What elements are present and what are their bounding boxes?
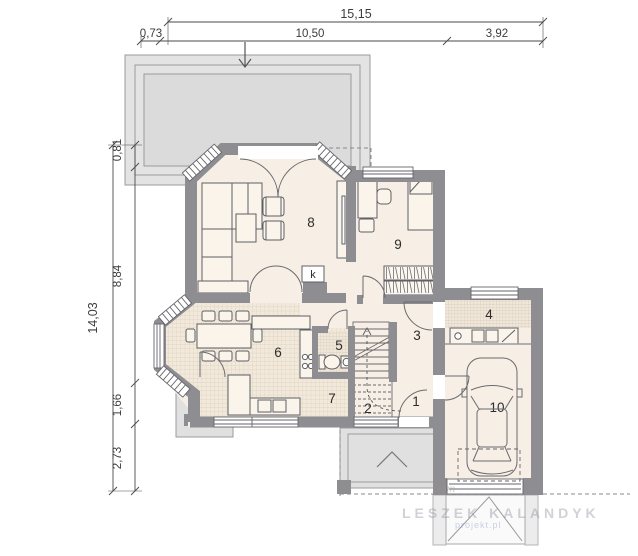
dimension-left bbox=[108, 141, 142, 495]
bed bbox=[408, 178, 434, 230]
utility-window bbox=[471, 287, 518, 299]
floor-plan-page: 1 2 3 4 5 6 7 8 9 10 k 15,15 0,73 10,50 … bbox=[0, 0, 638, 556]
dim-seg-1-66: 1,66 bbox=[112, 394, 124, 416]
hall-window bbox=[354, 417, 398, 427]
porch-column bbox=[337, 480, 351, 494]
dim-total-width: 15,15 bbox=[340, 7, 371, 21]
dimension-top-labels: 15,15 0,73 10,50 3,92 bbox=[140, 7, 508, 40]
dim-seg-3-92: 3,92 bbox=[486, 28, 508, 40]
room-label-4: 4 bbox=[485, 307, 493, 322]
room-label-6: 6 bbox=[274, 345, 282, 360]
room-label-2: 2 bbox=[364, 401, 372, 416]
dim-seg-8-84: 8,84 bbox=[112, 264, 124, 287]
watermark-script: Dom bbox=[431, 481, 456, 495]
bedroom-window bbox=[363, 167, 413, 178]
room-label-5: 5 bbox=[335, 338, 343, 353]
entrance-porch bbox=[337, 428, 445, 494]
sideboard bbox=[198, 281, 248, 293]
watermark-site: projekt.pl bbox=[455, 520, 502, 530]
kitchen-window bbox=[214, 417, 298, 427]
dimension-left-labels: 14,03 0,81 8,84 1,66 2,73 bbox=[86, 139, 124, 469]
room-label-10: 10 bbox=[489, 400, 504, 415]
utility-counter bbox=[450, 328, 518, 344]
toilet bbox=[319, 355, 340, 369]
coffee-table bbox=[236, 214, 256, 242]
dim-seg-2-73: 2,73 bbox=[112, 447, 124, 469]
bay-window-center bbox=[154, 324, 164, 368]
room-label-3: 3 bbox=[413, 328, 421, 343]
fireplace-label: k bbox=[310, 269, 316, 281]
room-label-9: 9 bbox=[394, 237, 402, 252]
floor-plan-svg: 1 2 3 4 5 6 7 8 9 10 k 15,15 0,73 10,50 … bbox=[0, 0, 638, 556]
dim-seg-0-81: 0,81 bbox=[112, 139, 124, 161]
dim-total-height: 14,03 bbox=[86, 302, 100, 333]
dim-seg-10-50: 10,50 bbox=[296, 28, 325, 40]
room-label-8: 8 bbox=[307, 215, 315, 230]
wardrobe bbox=[384, 266, 438, 295]
terrace-door-opening bbox=[238, 146, 318, 159]
room-label-1: 1 bbox=[412, 394, 420, 409]
room-label-7: 7 bbox=[328, 391, 336, 406]
dim-seg-0-73: 0,73 bbox=[140, 28, 162, 40]
watermark-designer: LESZEK KALANDYK bbox=[402, 505, 600, 521]
